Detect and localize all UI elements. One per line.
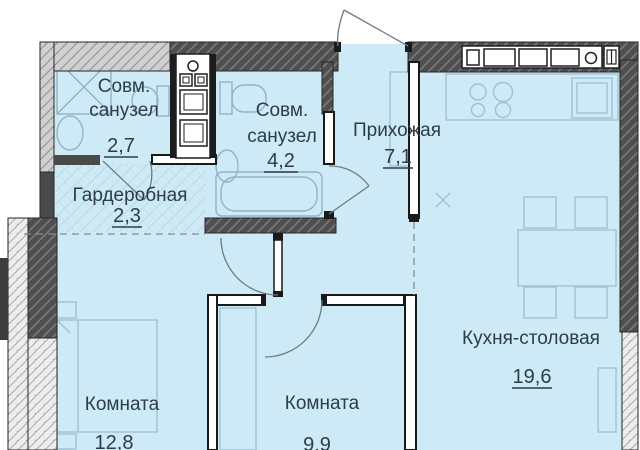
window-icon: [484, 49, 515, 66]
room-area: 2,3: [113, 205, 141, 227]
wall: [208, 295, 217, 450]
wall-end-cap: [409, 214, 419, 222]
room-area: 7,1: [384, 146, 412, 168]
wall: [217, 295, 265, 305]
wall: [54, 155, 100, 165]
window-band: [462, 46, 619, 68]
room-area: 4,2: [267, 150, 295, 172]
wall: [210, 54, 216, 158]
utility-shaft: [176, 54, 210, 158]
room-area: 2,7: [107, 135, 135, 157]
room-name: санузел: [89, 100, 159, 121]
floor-plan-page: Совм. санузел 2,7 Совм. санузел 4,2 Прих…: [0, 0, 640, 450]
wall: [28, 338, 57, 450]
wall: [324, 112, 334, 164]
wall: [322, 62, 333, 114]
wall: [0, 258, 8, 340]
room-name: Кухня-столовая: [462, 328, 600, 349]
floor-plan: Совм. санузел 2,7 Совм. санузел 4,2 Прих…: [0, 0, 640, 450]
wall: [40, 42, 170, 71]
wall: [40, 172, 54, 218]
room-name: Прихожая: [353, 120, 441, 141]
room-area: 9,9: [303, 434, 331, 450]
wall: [40, 42, 54, 172]
room-name: санузел: [247, 126, 317, 147]
room-area: 12,8: [95, 432, 134, 450]
vent-circle-icon: [188, 61, 198, 71]
entrance-opening: [338, 44, 408, 71]
room-name: Комната: [285, 393, 360, 414]
wall: [622, 332, 638, 450]
room-name: Совм.: [256, 100, 309, 121]
sink-icon: [586, 53, 597, 64]
wall: [170, 54, 176, 158]
window-icon: [551, 49, 579, 66]
room-name: Гардеробная: [73, 185, 188, 206]
wall: [620, 60, 638, 332]
room-area: 19,6: [513, 366, 552, 388]
window-icon: [519, 49, 547, 66]
wall: [8, 218, 28, 450]
wall: [405, 295, 416, 450]
room-name: Совм.: [98, 76, 151, 97]
vent-shaft-icon: [604, 46, 619, 68]
room-name: Комната: [85, 394, 160, 415]
wall: [28, 218, 57, 338]
wall: [205, 218, 336, 233]
wall: [322, 295, 404, 305]
